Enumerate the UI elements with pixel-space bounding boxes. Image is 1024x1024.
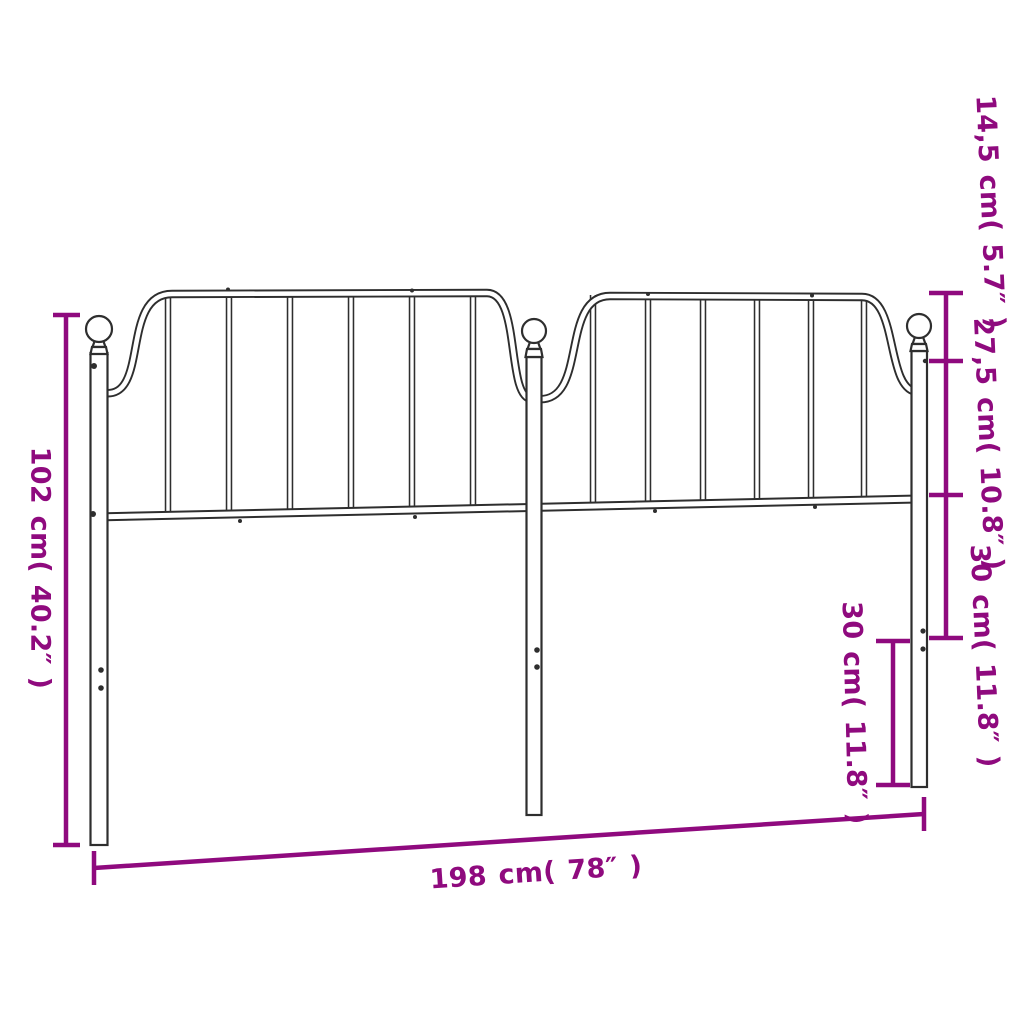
center-finial-ball — [522, 319, 546, 343]
right-post — [907, 314, 931, 787]
right-finial-ball — [907, 314, 931, 338]
center-post — [522, 319, 546, 815]
bottom-rail — [94, 499, 918, 517]
dimension-lines — [53, 293, 963, 885]
headboard-bars — [168, 292, 864, 516]
left-finial-ball — [86, 316, 112, 342]
product-dimension-diagram: 102 cm( 40.2″ ) 14,5 cm( 5.7″ ) 27,5 cm(… — [0, 0, 1024, 1024]
right-segments-dimension-line — [929, 293, 963, 638]
bracket-to-leg-end-label: 30 cm( 11.8″ ) — [838, 601, 871, 825]
bracket-dimension-line — [876, 641, 910, 785]
height-dimension-line — [53, 315, 80, 845]
left-post — [86, 316, 112, 845]
total-height-label: 102 cm( 40.2″ ) — [27, 447, 54, 690]
